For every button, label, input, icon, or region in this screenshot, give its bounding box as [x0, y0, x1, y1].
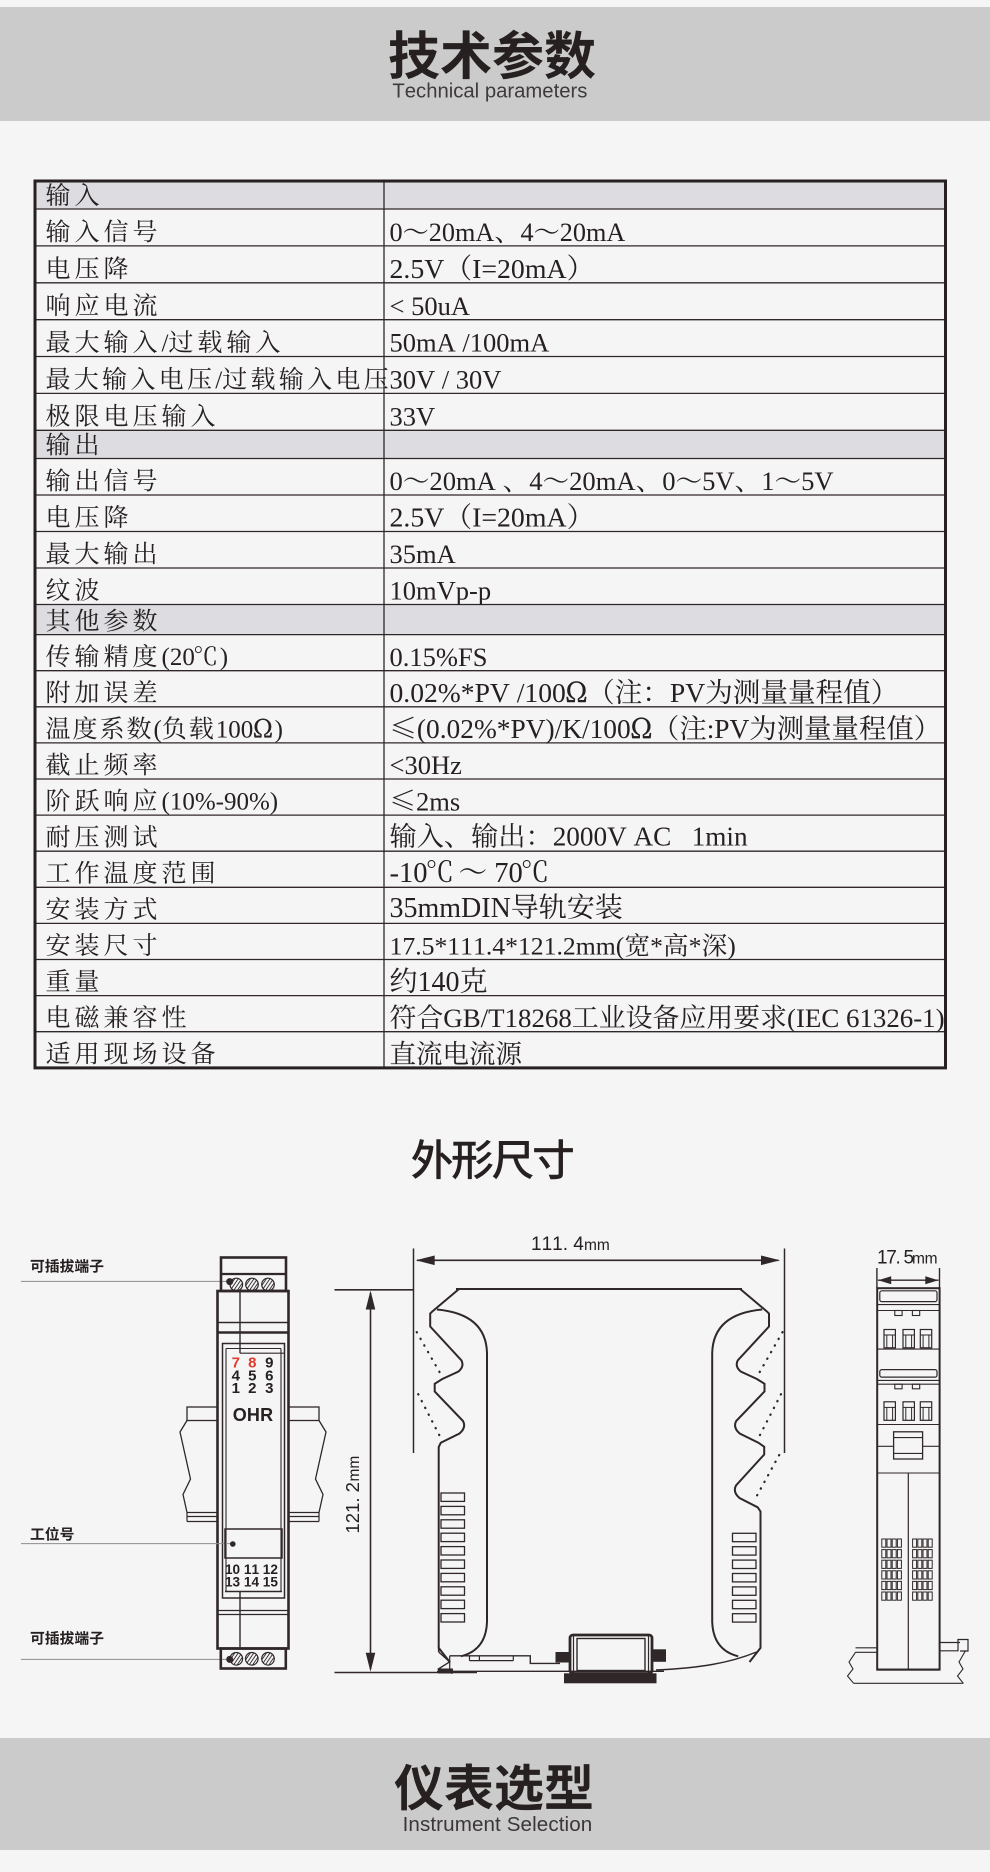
svg-text:20mA: 20mA [429, 466, 502, 496]
svg-text:35mA: 35mA [390, 539, 456, 569]
svg-text:111. 4: 111. 4 [531, 1234, 584, 1255]
svg-text:50mA /100mA: 50mA /100mA [390, 328, 550, 358]
svg-text:mm: mm [912, 1251, 937, 1268]
svg-text:17. 5: 17. 5 [877, 1248, 913, 1269]
svg-text:100: 100 [216, 716, 254, 743]
svg-text:mm: mm [584, 1237, 610, 1254]
svg-text:I=20mA: I=20mA [472, 503, 566, 534]
svg-text:30V / 30V: 30V / 30V [390, 365, 502, 395]
svg-text:17.5*111.4*121.2mm(: 17.5*111.4*121.2mm( [390, 932, 625, 961]
svg-text:1: 1 [761, 466, 774, 496]
svg-text:140: 140 [418, 967, 460, 998]
svg-text:20mA: 20mA [429, 218, 495, 247]
svg-text:/: / [162, 330, 169, 357]
svg-text:(IEC 61326-1): (IEC 61326-1) [787, 1003, 945, 1033]
svg-text:<30Hz: <30Hz [390, 750, 463, 780]
svg-text:4: 4 [529, 466, 542, 496]
svg-text:3: 3 [265, 1380, 273, 1397]
svg-text:10mVp-p: 10mVp-p [390, 576, 492, 606]
svg-text:33V: 33V [390, 402, 436, 432]
svg-text:*: * [650, 932, 663, 961]
svg-text:GB/T18268: GB/T18268 [443, 1003, 571, 1033]
svg-text:I=20mA: I=20mA [472, 254, 566, 285]
svg-text:/: / [215, 367, 222, 394]
svg-text::PV: :PV [707, 714, 750, 744]
svg-text:0: 0 [390, 218, 403, 247]
svg-text:2.5V: 2.5V [390, 503, 445, 534]
svg-text:Instrument Selection: Instrument Selection [403, 1813, 593, 1836]
svg-text:2: 2 [248, 1380, 256, 1397]
svg-text:2ms: 2ms [416, 786, 460, 816]
svg-text:): ) [727, 932, 736, 961]
svg-text:< 50uA: < 50uA [390, 291, 470, 321]
svg-text:20mA: 20mA [569, 466, 636, 496]
svg-text:70: 70 [487, 858, 523, 889]
svg-text:(0.02%*PV)/K/100: (0.02%*PV)/K/100 [417, 714, 631, 744]
svg-text:35mmDIN: 35mmDIN [390, 893, 511, 924]
svg-text:(: ( [154, 716, 162, 743]
svg-text:5V: 5V [801, 466, 834, 496]
svg-text:OHR: OHR [233, 1405, 274, 1425]
svg-text:2000V AC 1min: 2000V AC 1min [553, 822, 748, 852]
svg-text:5V: 5V [702, 466, 735, 496]
svg-text:mm: mm [346, 1456, 363, 1482]
svg-text:121. 2: 121. 2 [342, 1482, 363, 1533]
svg-text:): ) [220, 644, 228, 671]
svg-text:0.15%FS: 0.15%FS [390, 642, 488, 672]
svg-text:4: 4 [521, 218, 534, 247]
svg-text:0: 0 [662, 466, 675, 496]
svg-text:0.02%*PV /100: 0.02%*PV /100 [390, 677, 566, 708]
svg-text:Technical parameters: Technical parameters [392, 81, 587, 103]
svg-text:20mA: 20mA [560, 218, 626, 247]
svg-text:1: 1 [232, 1380, 240, 1397]
svg-text:*: * [689, 932, 702, 961]
svg-text:(10%-90%): (10%-90%) [162, 789, 279, 816]
svg-text:0: 0 [390, 466, 403, 496]
svg-text:-10: -10 [390, 858, 428, 889]
svg-text:(20: (20 [162, 644, 195, 671]
svg-text:13 14 15: 13 14 15 [225, 1575, 278, 1590]
svg-text:PV: PV [670, 677, 705, 708]
svg-text:2.5V: 2.5V [390, 254, 445, 285]
svg-text:): ) [275, 716, 283, 743]
